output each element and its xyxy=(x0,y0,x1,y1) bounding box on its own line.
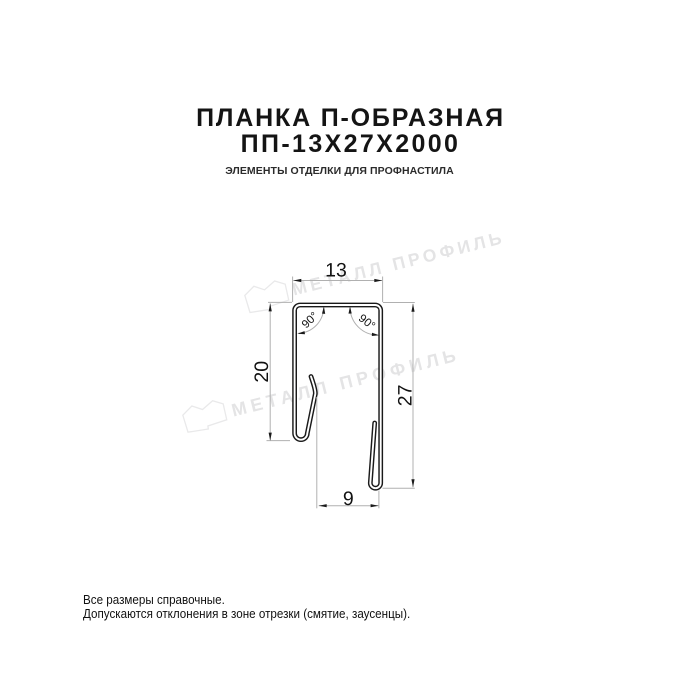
svg-text:13: 13 xyxy=(325,260,347,282)
svg-text:90°: 90° xyxy=(356,312,377,332)
svg-text:МЕТАЛЛ ПРОФИЛЬ: МЕТАЛЛ ПРОФИЛЬ xyxy=(290,227,507,299)
svg-text:27: 27 xyxy=(394,385,416,407)
svg-text:9: 9 xyxy=(343,488,354,510)
svg-text:20: 20 xyxy=(251,361,273,383)
svg-text:90°: 90° xyxy=(300,310,321,331)
